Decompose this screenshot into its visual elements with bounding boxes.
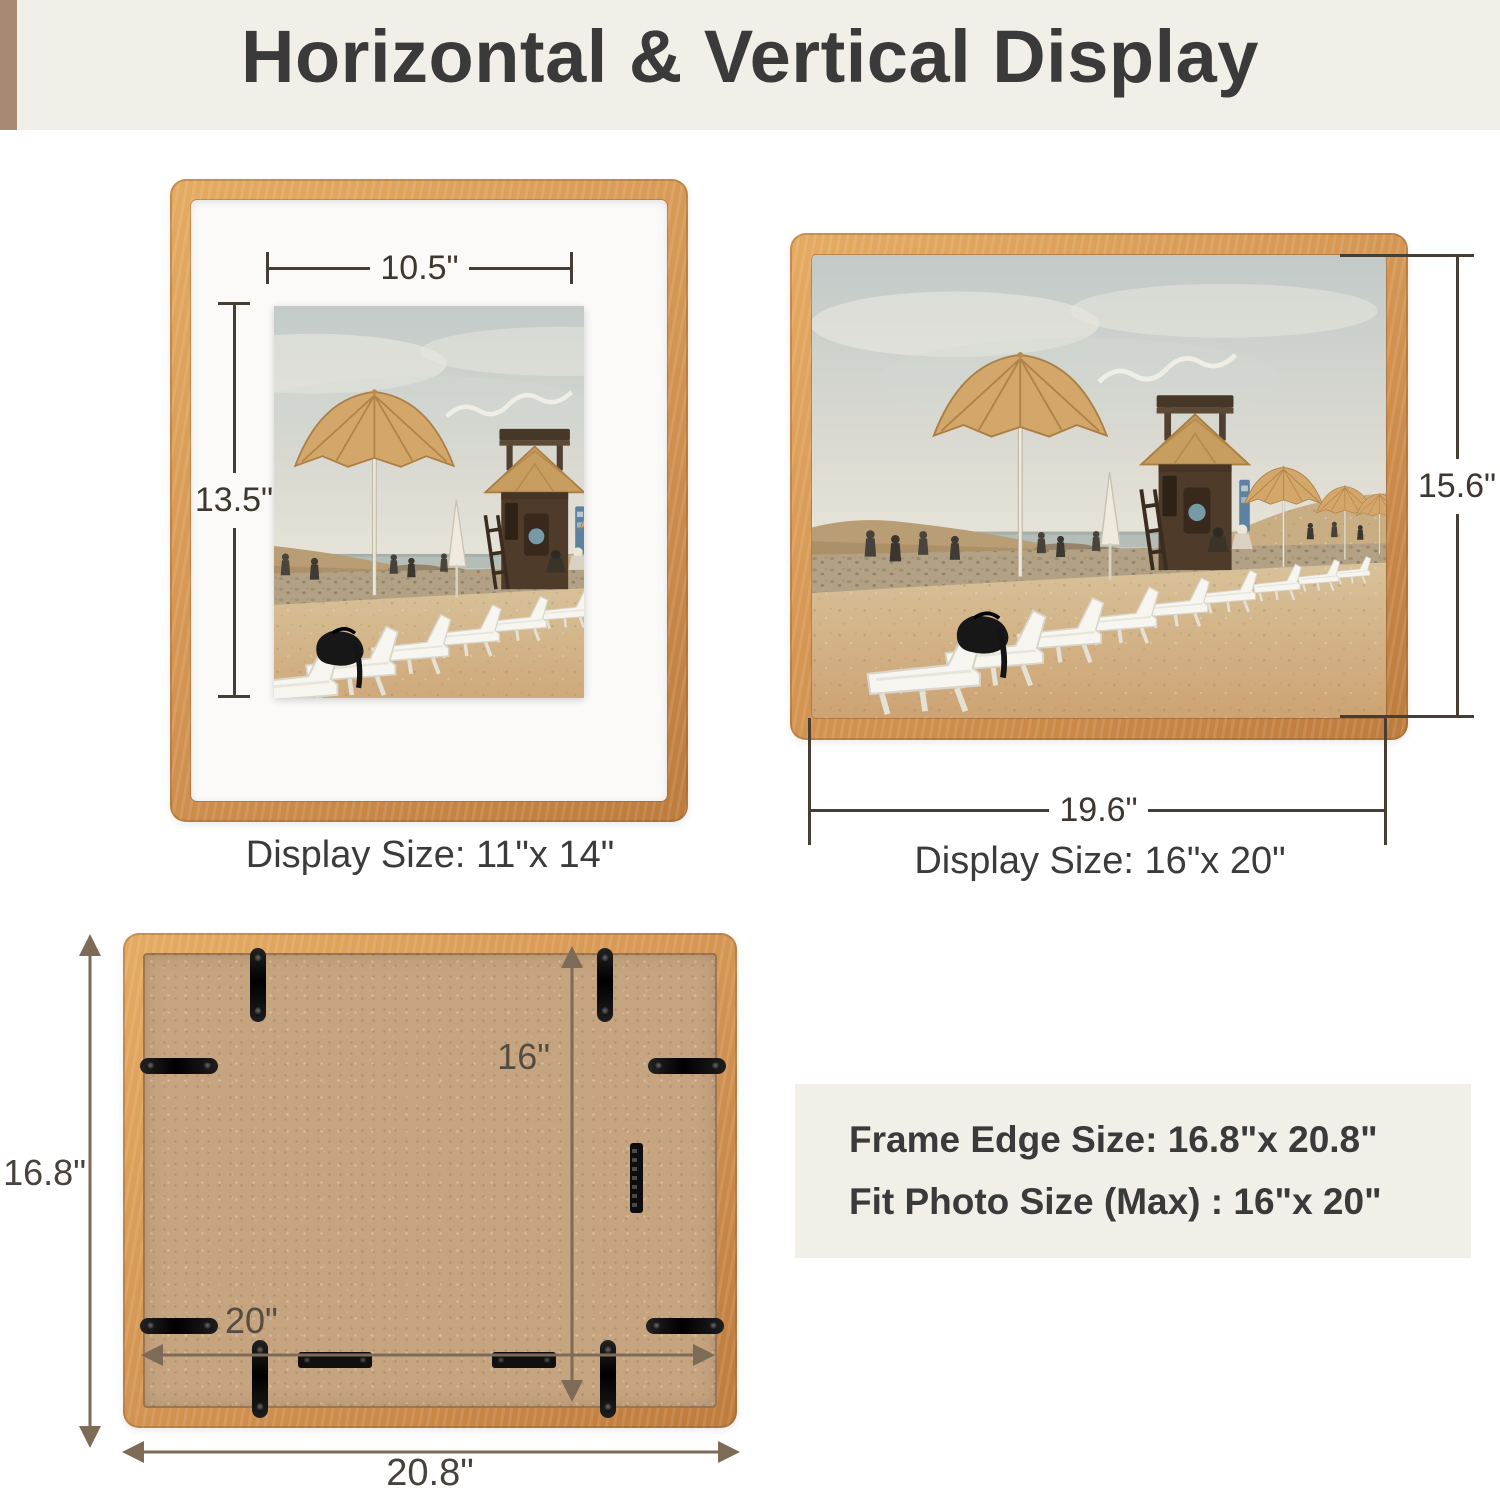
- dimension-tick: [570, 252, 573, 284]
- arrow-right-icon: [693, 1344, 715, 1366]
- dimension-label: 13.5": [195, 473, 273, 528]
- dimension-line: [233, 305, 236, 473]
- fit-photo-size-text: Fit Photo Size (Max) : 16"x 20": [849, 1181, 1471, 1223]
- dimension-tick: [1340, 715, 1474, 718]
- outer-height-label: 16.8": [0, 1152, 86, 1194]
- page-title: Horizontal & Vertical Display: [0, 14, 1500, 99]
- frame-edge-size-text: Frame Edge Size: 16.8"x 20.8": [849, 1119, 1471, 1161]
- inner-height-arrow: [560, 946, 584, 1402]
- dimension-line: [269, 267, 370, 270]
- beach-photo-illustration: [274, 306, 584, 698]
- dimension-line: [233, 528, 236, 696]
- dimension-label: 15.6": [1418, 459, 1496, 514]
- dimension-line: [1456, 514, 1459, 716]
- dimension-label: 10.5": [370, 249, 468, 288]
- horizontal-frame: [790, 233, 1408, 740]
- dimension-line: [1148, 809, 1387, 812]
- beach-photo-illustration: [812, 255, 1386, 718]
- horizontal-frame-caption: Display Size: 16"x 20": [800, 840, 1400, 883]
- header-band: Horizontal & Vertical Display: [0, 0, 1500, 130]
- mounting-clip-icon: [140, 1058, 218, 1074]
- inner-height-label: 16": [470, 1036, 550, 1078]
- vertical-frame-caption: Display Size: 11"x 14": [130, 834, 730, 877]
- arrow-down-icon: [561, 1380, 583, 1402]
- outer-width-label: 20.8": [220, 1452, 640, 1489]
- dimension-line: [810, 809, 1049, 812]
- horizontal-frame-width-dimension: 19.6": [810, 794, 1387, 826]
- inner-width-label: 20": [225, 1300, 278, 1342]
- arrow-shaft: [571, 964, 574, 1384]
- dimension-tick: [218, 695, 250, 698]
- vertical-frame-width-dimension: 10.5": [266, 252, 573, 284]
- arrow-shaft: [159, 1354, 697, 1357]
- arrow-shaft: [89, 952, 92, 1430]
- arrow-down-icon: [79, 1426, 101, 1448]
- vertical-frame-height-dimension: 13.5": [186, 302, 282, 698]
- mounting-clip-icon: [597, 948, 613, 1022]
- mounting-clip-icon: [646, 1318, 724, 1334]
- dimension-label: 19.6": [1049, 791, 1147, 830]
- sawtooth-hanger-icon: [630, 1143, 643, 1213]
- inner-width-arrow: [141, 1343, 715, 1367]
- size-info-box: Frame Edge Size: 16.8"x 20.8" Fit Photo …: [795, 1084, 1471, 1258]
- mounting-clip-icon: [140, 1318, 218, 1334]
- mounting-clip-icon: [648, 1058, 726, 1074]
- dimension-line: [469, 267, 570, 270]
- mounting-clip-icon: [250, 948, 266, 1022]
- horizontal-frame-height-dimension: 15.6": [1411, 257, 1500, 715]
- beach-photo-vertical: [274, 306, 584, 698]
- beach-photo-horizontal: [812, 255, 1386, 718]
- product-infographic: Horizontal & Vertical Display 10.5" 13.5…: [0, 0, 1500, 1489]
- dimension-line: [1456, 257, 1459, 459]
- arrow-right-icon: [718, 1441, 740, 1463]
